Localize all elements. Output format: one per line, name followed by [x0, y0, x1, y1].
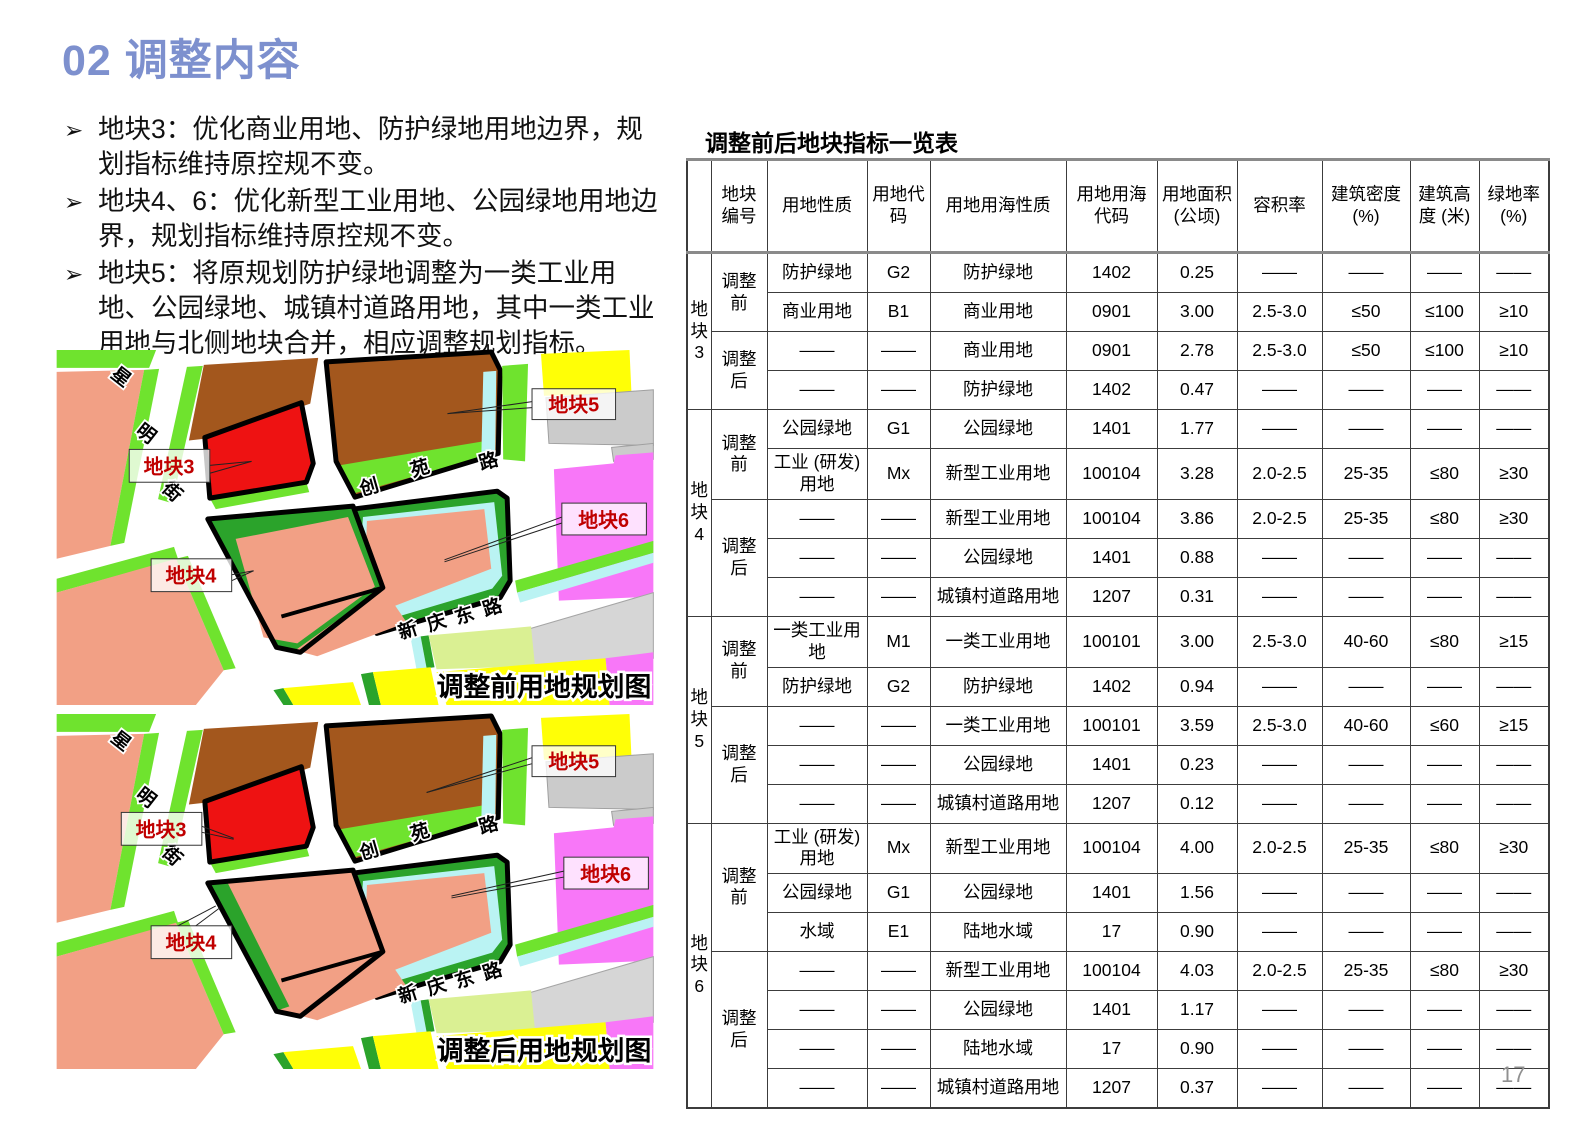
table-cell: 城镇村道路用地	[930, 1069, 1066, 1109]
table-cell: ——	[1479, 991, 1549, 1030]
plot5-label: 地块5	[548, 751, 599, 774]
table-row: 调整后————商业用地09012.782.5-3.0≤50≤100≥10	[687, 332, 1549, 371]
block-label-cell: 地块4	[687, 410, 711, 617]
plot3-label: 地块3	[136, 818, 187, 841]
column-header: 容积率	[1237, 160, 1322, 253]
table-cell: 新型工业用地	[930, 952, 1066, 991]
table-cell: 3.00	[1157, 293, 1237, 332]
table-cell: 3.86	[1157, 499, 1237, 538]
table-cell: ——	[1410, 784, 1479, 823]
table-cell: ——	[1479, 784, 1549, 823]
table-cell: 工业 (研发) 用地	[767, 823, 867, 874]
table-cell: 1401	[1066, 410, 1157, 449]
table-cell: 2.5-3.0	[1237, 706, 1322, 745]
table-cell: ——	[767, 706, 867, 745]
table-cell: ——	[1479, 745, 1549, 784]
table-title: 调整前后地块指标一览表	[705, 124, 958, 158]
arrow-bullet-icon: ➢	[64, 112, 98, 182]
column-header: 用地用海代码	[1066, 160, 1157, 253]
table-cell: ≤80	[1410, 952, 1479, 991]
table-cell: ——	[1479, 410, 1549, 449]
table-cell: 1401	[1066, 538, 1157, 577]
table-cell: ——	[1322, 577, 1410, 616]
table-cell: ——	[1237, 410, 1322, 449]
table-cell: 2.5-3.0	[1237, 293, 1322, 332]
table-cell: ——	[1479, 538, 1549, 577]
table-cell: 2.0-2.5	[1237, 449, 1322, 500]
table-cell: 2.0-2.5	[1237, 823, 1322, 874]
table-cell: ——	[867, 1069, 930, 1109]
table-cell: 2.5-3.0	[1237, 332, 1322, 371]
table-cell: 公园绿地	[930, 538, 1066, 577]
table-cell: ≥15	[1479, 616, 1549, 667]
table-cell: 25-35	[1322, 952, 1410, 991]
table-cell: 25-35	[1322, 499, 1410, 538]
table-cell: 1401	[1066, 745, 1157, 784]
table-cell: ——	[767, 499, 867, 538]
table-cell: 新型工业用地	[930, 449, 1066, 500]
table-cell: ≥15	[1479, 706, 1549, 745]
table-cell: 0.23	[1157, 745, 1237, 784]
table-cell: B1	[867, 293, 930, 332]
table-cell: 0901	[1066, 332, 1157, 371]
table-cell: E1	[867, 913, 930, 952]
table-cell: ——	[1479, 874, 1549, 913]
table-row: 防护绿地G2防护绿地14020.94————————	[687, 667, 1549, 706]
table-row: 地块5调整前一类工业用地M1一类工业用地1001013.002.5-3.040-…	[687, 616, 1549, 667]
table-cell: ——	[1237, 253, 1322, 293]
table-cell: 4.00	[1157, 823, 1237, 874]
table-row: ————公园绿地14011.17————————	[687, 991, 1549, 1030]
table-cell: ——	[1410, 253, 1479, 293]
table-cell: 3.28	[1157, 449, 1237, 500]
table-cell: Mx	[867, 823, 930, 874]
table-header-row: 地块编号 用地性质 用地代码 用地用海性质 用地用海代码 用地面积 (公顷) 容…	[687, 160, 1549, 253]
table-cell: 陆地水域	[930, 1030, 1066, 1069]
table-cell: ——	[767, 1069, 867, 1109]
table-cell: 一类工业用地	[767, 616, 867, 667]
column-header: 用地面积 (公顷)	[1157, 160, 1237, 253]
table-cell: 2.5-3.0	[1237, 616, 1322, 667]
table-cell: ——	[867, 706, 930, 745]
table-cell: G2	[867, 667, 930, 706]
phase-label-cell: 调整前	[711, 823, 767, 952]
column-header: 用地代码	[867, 160, 930, 253]
table-cell: 城镇村道路用地	[930, 577, 1066, 616]
table-cell: 40-60	[1322, 616, 1410, 667]
table-row: 地块4调整前公园绿地G1公园绿地14011.77————————	[687, 410, 1549, 449]
table-cell: ——	[1237, 991, 1322, 1030]
map-before-svg: 星 明 街 创 苑 路 新 庆 东 路 地块5 地块3 地块6 地块4 调整前用…	[55, 342, 655, 705]
phase-label-cell: 调整后	[711, 706, 767, 823]
table-cell: ——	[1322, 745, 1410, 784]
table-body: 地块3调整前防护绿地G2防护绿地14020.25————————商业用地B1商业…	[687, 253, 1549, 1109]
table-cell: 公园绿地	[930, 874, 1066, 913]
table-cell: 新型工业用地	[930, 823, 1066, 874]
table-cell: ——	[767, 332, 867, 371]
table-cell: ——	[767, 991, 867, 1030]
table-cell: 1401	[1066, 874, 1157, 913]
table-row: ————城镇村道路用地12070.12————————	[687, 784, 1549, 823]
table-cell: ——	[1410, 745, 1479, 784]
table-cell: 新型工业用地	[930, 499, 1066, 538]
table-cell: ——	[1410, 577, 1479, 616]
table-cell: ≥30	[1479, 449, 1549, 500]
table-cell: 公园绿地	[930, 745, 1066, 784]
table-cell: 0.90	[1157, 1030, 1237, 1069]
table-cell: ——	[767, 1030, 867, 1069]
table-cell: ≤100	[1410, 293, 1479, 332]
table-cell: 0.31	[1157, 577, 1237, 616]
table-cell: 防护绿地	[767, 667, 867, 706]
phase-label-cell: 调整后	[711, 952, 767, 1109]
table-cell: 公园绿地	[767, 410, 867, 449]
table-cell: 商业用地	[930, 332, 1066, 371]
table-cell: ——	[1322, 991, 1410, 1030]
table-cell: ——	[1410, 410, 1479, 449]
table-cell: 25-35	[1322, 823, 1410, 874]
table-cell: 防护绿地	[930, 253, 1066, 293]
map-after-caption: 调整后用地规划图	[437, 1036, 652, 1066]
table-cell: 2.0-2.5	[1237, 952, 1322, 991]
table-cell: 1.56	[1157, 874, 1237, 913]
table-cell: 100104	[1066, 449, 1157, 500]
table-cell: ——	[1322, 667, 1410, 706]
table-cell: ≤80	[1410, 499, 1479, 538]
table-cell: ——	[1322, 371, 1410, 410]
table-row: ————公园绿地14010.88————————	[687, 538, 1549, 577]
table-cell: 0.12	[1157, 784, 1237, 823]
table-row: 地块6调整前工业 (研发) 用地Mx新型工业用地1001044.002.0-2.…	[687, 823, 1549, 874]
table-cell: ——	[1410, 371, 1479, 410]
table-cell: 0901	[1066, 293, 1157, 332]
table-cell: ——	[867, 332, 930, 371]
table-cell: 1.17	[1157, 991, 1237, 1030]
table-cell: M1	[867, 616, 930, 667]
table-cell: ≤50	[1322, 293, 1410, 332]
table-cell: ——	[1237, 745, 1322, 784]
plot4-label: 地块4	[165, 565, 216, 588]
table-cell: 3.59	[1157, 706, 1237, 745]
table-cell: 2.78	[1157, 332, 1237, 371]
table-cell: ——	[1237, 784, 1322, 823]
table-cell: ——	[867, 745, 930, 784]
table-cell: ——	[867, 952, 930, 991]
table-cell: ≥30	[1479, 499, 1549, 538]
column-header: 地块编号	[711, 160, 767, 253]
plot4-label: 地块4	[165, 932, 216, 955]
block-label-cell: 地块5	[687, 616, 711, 823]
phase-label-cell: 调整前	[711, 410, 767, 500]
table-cell: ——	[1410, 913, 1479, 952]
table-cell: ——	[1237, 538, 1322, 577]
table-cell: 水域	[767, 913, 867, 952]
table-cell: ——	[1237, 577, 1322, 616]
table-cell: 公园绿地	[930, 991, 1066, 1030]
column-header: 建筑密度 (%)	[1322, 160, 1410, 253]
table-row: ————公园绿地14010.23————————	[687, 745, 1549, 784]
plot5-label: 地块5	[548, 394, 599, 417]
table-cell: ——	[1479, 667, 1549, 706]
block-label-cell: 地块3	[687, 253, 711, 410]
table-cell: 1207	[1066, 1069, 1157, 1109]
table-row: 商业用地B1商业用地09013.002.5-3.0≤50≤100≥10	[687, 293, 1549, 332]
table-cell: ——	[1410, 991, 1479, 1030]
table-cell: ≤60	[1410, 706, 1479, 745]
table-cell: ——	[1479, 371, 1549, 410]
table-cell: ——	[1479, 253, 1549, 293]
table-cell: ——	[1322, 784, 1410, 823]
table-row: 调整后————新型工业用地1001044.032.0-2.525-35≤80≥3…	[687, 952, 1549, 991]
table-row: ————防护绿地14020.47————————	[687, 371, 1549, 410]
table-cell: ——	[1322, 913, 1410, 952]
table-row: ————陆地水域170.90————————	[687, 1030, 1549, 1069]
bullet-list: ➢ 地块3：优化商业用地、防护绿地用地边界，规划指标维持原控规不变。 ➢ 地块4…	[64, 112, 661, 363]
bullet-text: 地块3：优化商业用地、防护绿地用地边界，规划指标维持原控规不变。	[98, 112, 661, 182]
table-cell: 1402	[1066, 667, 1157, 706]
table-cell: 1401	[1066, 991, 1157, 1030]
map-before-caption: 调整前用地规划图	[437, 671, 652, 702]
phase-label-cell: 调整后	[711, 499, 767, 616]
plot6-label: 地块6	[578, 509, 629, 532]
table-cell: 商业用地	[930, 293, 1066, 332]
arrow-bullet-icon: ➢	[64, 184, 98, 254]
bullet-item: ➢ 地块4、6：优化新型工业用地、公园绿地用地边界，规划指标维持原控规不变。	[64, 184, 661, 254]
table-cell: Mx	[867, 449, 930, 500]
table-cell: ——	[867, 991, 930, 1030]
table-cell: 0.94	[1157, 667, 1237, 706]
table-cell: 1402	[1066, 371, 1157, 410]
column-header: 用地用海性质	[930, 160, 1066, 253]
table-cell: 1402	[1066, 253, 1157, 293]
table-cell: ——	[1322, 253, 1410, 293]
table-cell: 4.03	[1157, 952, 1237, 991]
plot-indicator-table: 地块编号 用地性质 用地代码 用地用海性质 用地用海代码 用地面积 (公顷) 容…	[686, 158, 1550, 1109]
table-cell: ——	[1322, 410, 1410, 449]
table-row: 工业 (研发) 用地Mx新型工业用地1001043.282.0-2.525-35…	[687, 449, 1549, 500]
table-cell: ≥30	[1479, 952, 1549, 991]
table-cell: 0.25	[1157, 253, 1237, 293]
table-cell: 100104	[1066, 823, 1157, 874]
table-cell: ——	[1237, 371, 1322, 410]
map-before-adjustment: 星 明 街 创 苑 路 新 庆 东 路 地块5 地块3 地块6 地块4 调整前用…	[55, 342, 655, 705]
table-cell: ——	[1479, 913, 1549, 952]
plot3-label: 地块3	[144, 455, 195, 478]
corner-cell	[687, 160, 711, 253]
column-header: 用地性质	[767, 160, 867, 253]
table-cell: 2.0-2.5	[1237, 499, 1322, 538]
table-cell: ——	[767, 745, 867, 784]
table-row: 调整后————一类工业用地1001013.592.5-3.040-60≤60≥1…	[687, 706, 1549, 745]
table-cell: ——	[767, 577, 867, 616]
table-cell: 17	[1066, 1030, 1157, 1069]
table-cell: ≤100	[1410, 332, 1479, 371]
table-cell: ——	[1410, 874, 1479, 913]
table-cell: 一类工业用地	[930, 706, 1066, 745]
table-row: ————城镇村道路用地12070.31————————	[687, 577, 1549, 616]
table-cell: 100104	[1066, 499, 1157, 538]
table-row: 地块3调整前防护绿地G2防护绿地14020.25————————	[687, 253, 1549, 293]
bullet-item: ➢ 地块3：优化商业用地、防护绿地用地边界，规划指标维持原控规不变。	[64, 112, 661, 182]
table-cell: ——	[767, 784, 867, 823]
slide: 02 调整内容 ➢ 地块3：优化商业用地、防护绿地用地边界，规划指标维持原控规不…	[0, 0, 1587, 1123]
table-cell: 陆地水域	[930, 913, 1066, 952]
table-cell: ——	[1237, 913, 1322, 952]
table-cell: 100101	[1066, 706, 1157, 745]
table-cell: ——	[1410, 1030, 1479, 1069]
table-cell: ——	[867, 371, 930, 410]
plot6-label: 地块6	[580, 863, 631, 886]
table-cell: ——	[867, 784, 930, 823]
table-cell: 1207	[1066, 784, 1157, 823]
table-cell: ——	[767, 952, 867, 991]
table-cell: 公园绿地	[930, 410, 1066, 449]
table-cell: 17	[1066, 913, 1157, 952]
table-cell: 0.88	[1157, 538, 1237, 577]
table-cell: ——	[1410, 538, 1479, 577]
table-cell: ——	[867, 499, 930, 538]
table-cell: G1	[867, 410, 930, 449]
table-cell: 0.47	[1157, 371, 1237, 410]
table-cell: 3.00	[1157, 616, 1237, 667]
table-cell: 商业用地	[767, 293, 867, 332]
page-title: 02 调整内容	[62, 26, 301, 88]
column-header: 建筑高度 (米)	[1410, 160, 1479, 253]
table-cell: ≤80	[1410, 616, 1479, 667]
table-cell: 1207	[1066, 577, 1157, 616]
table-cell: ≤80	[1410, 449, 1479, 500]
table-cell: ——	[1322, 1069, 1410, 1109]
bullet-text: 地块4、6：优化新型工业用地、公园绿地用地边界，规划指标维持原控规不变。	[98, 184, 661, 254]
table-cell: 工业 (研发) 用地	[767, 449, 867, 500]
table-cell: ——	[1322, 874, 1410, 913]
table-cell: ——	[867, 577, 930, 616]
table-cell: 100104	[1066, 952, 1157, 991]
table-cell: ≥10	[1479, 293, 1549, 332]
table-cell: 0.90	[1157, 913, 1237, 952]
table-cell: 一类工业用地	[930, 616, 1066, 667]
table-row: 水域E1陆地水域170.90————————	[687, 913, 1549, 952]
table-cell: 25-35	[1322, 449, 1410, 500]
table-cell: 0.37	[1157, 1069, 1237, 1109]
map-after-adjustment: 星 明 街 创 苑 路 新 庆 东 路 地块5 地块3 地块6 地块4 调整后用…	[55, 706, 655, 1069]
table-cell: ≤50	[1322, 332, 1410, 371]
table-cell: ——	[767, 538, 867, 577]
table-cell: 100101	[1066, 616, 1157, 667]
table-cell: ——	[1322, 1030, 1410, 1069]
table-cell: 防护绿地	[930, 667, 1066, 706]
table-cell: ——	[1237, 667, 1322, 706]
phase-label-cell: 调整前	[711, 253, 767, 332]
table-cell: ——	[1322, 538, 1410, 577]
phase-label-cell: 调整后	[711, 332, 767, 410]
table-cell: ≥30	[1479, 823, 1549, 874]
table-cell: ——	[867, 1030, 930, 1069]
table-cell: 防护绿地	[767, 253, 867, 293]
table-cell: G2	[867, 253, 930, 293]
table-row: 调整后————新型工业用地1001043.862.0-2.525-35≤80≥3…	[687, 499, 1549, 538]
page-number: 17	[1501, 1062, 1525, 1088]
table-cell: 1.77	[1157, 410, 1237, 449]
table-cell: ≤80	[1410, 823, 1479, 874]
table-cell: ——	[1410, 1069, 1479, 1109]
table-cell: ——	[1479, 577, 1549, 616]
table-row: 公园绿地G1公园绿地14011.56————————	[687, 874, 1549, 913]
table-cell: 公园绿地	[767, 874, 867, 913]
table-cell: ——	[1237, 1030, 1322, 1069]
table-row: ————城镇村道路用地12070.37————————	[687, 1069, 1549, 1109]
table-cell: ——	[867, 538, 930, 577]
table-cell: ——	[767, 371, 867, 410]
table-cell: G1	[867, 874, 930, 913]
table-cell: ≥10	[1479, 332, 1549, 371]
table-cell: 城镇村道路用地	[930, 784, 1066, 823]
phase-label-cell: 调整前	[711, 616, 767, 706]
table-cell: 防护绿地	[930, 371, 1066, 410]
column-header: 绿地率 (%)	[1479, 160, 1549, 253]
table-cell: ——	[1410, 667, 1479, 706]
block-label-cell: 地块6	[687, 823, 711, 1108]
table-cell: 40-60	[1322, 706, 1410, 745]
map-after-svg: 星 明 街 创 苑 路 新 庆 东 路 地块5 地块3 地块6 地块4 调整后用…	[55, 706, 655, 1069]
table-cell: ——	[1237, 874, 1322, 913]
table-cell: ——	[1237, 1069, 1322, 1109]
